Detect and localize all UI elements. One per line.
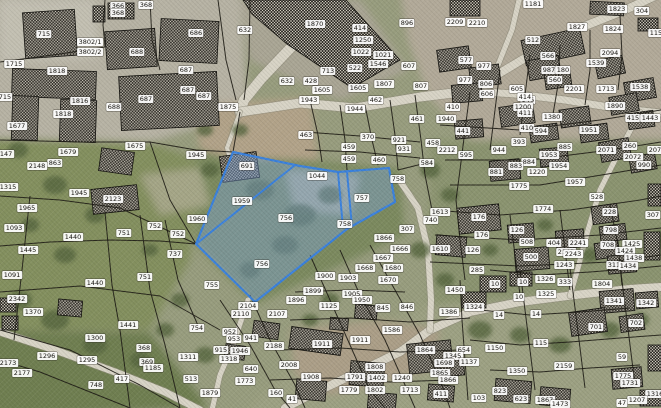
parcel-label: 417: [114, 375, 129, 383]
parcel-label: 1959: [232, 197, 252, 205]
parcel-label: 1370: [23, 308, 43, 316]
parcel-label: 757: [354, 194, 369, 202]
parcel-label: 1022: [351, 48, 371, 56]
parcel-label: 756: [278, 214, 293, 222]
parcel-label: 307: [399, 225, 414, 233]
parcel-label: 881: [488, 168, 503, 176]
parcel-label: 126: [509, 226, 524, 234]
parcel-label: 560: [547, 76, 562, 84]
parcel-label: 605: [509, 85, 524, 93]
parcel-label: 14: [530, 310, 541, 318]
parcel-label: 715: [36, 30, 51, 38]
parcel-label: 368: [138, 1, 153, 9]
parcel-label: 1698: [434, 359, 454, 367]
parcel-label: 1316: [645, 390, 661, 398]
parcel-label: 1152: [648, 29, 661, 37]
parcel-label: 228: [602, 208, 617, 216]
parcel-label: 410: [445, 103, 460, 111]
parcel-label: 990: [636, 161, 651, 169]
parcel-label: 941: [243, 334, 258, 342]
parcel-label: 1866: [438, 376, 458, 384]
parcel-label: 1791: [345, 373, 365, 381]
parcel-label: 1386: [439, 308, 459, 316]
parcel-label: 977: [476, 62, 491, 70]
parcel-label: 404: [546, 239, 561, 247]
parcel-label: 806: [478, 80, 493, 88]
parcel-label: 512: [525, 36, 540, 44]
parcel-label: 751: [116, 229, 131, 237]
parcel-label: 1774: [533, 205, 553, 213]
parcel-label: 1818: [53, 110, 73, 118]
parcel-label: 1667: [373, 254, 393, 262]
parcel-label: 713: [320, 67, 335, 75]
parcel-label: 1450: [445, 286, 465, 294]
parcel-label: 691: [239, 162, 254, 170]
parcel-label: 1342: [636, 299, 656, 307]
parcel-label: 1318: [219, 355, 239, 363]
parcel-label: 584: [419, 159, 434, 167]
parcel-label: 577: [458, 56, 473, 64]
parcel-label: 1181: [523, 0, 543, 8]
parcel-label: 14: [493, 311, 504, 319]
parcel-label: 1325: [536, 290, 556, 298]
parcel-label: 884: [521, 158, 536, 166]
parcel-label: 1957: [565, 178, 585, 186]
parcel-label: 1804: [592, 280, 612, 288]
parcel-label: 508: [519, 238, 534, 246]
parcel-label: 460: [371, 156, 386, 164]
parcel-label: 1775: [509, 182, 529, 190]
parcel-label: 885: [557, 143, 572, 151]
parcel-label: 528: [589, 193, 604, 201]
parcel-label: 463: [298, 131, 313, 139]
parcel-label: 751: [137, 273, 152, 281]
parcel-label: 1380: [542, 113, 562, 121]
parcel-label: 632: [279, 77, 294, 85]
parcel-label: 260: [622, 142, 637, 150]
parcel-label: 1440: [63, 233, 83, 241]
parcel-label: 1091: [2, 271, 22, 279]
parcel-label: 1713: [596, 85, 616, 93]
parcel-labels-layer: 7153663683683802/13802/21715181868668868…: [0, 0, 661, 408]
parcel-label: 126: [465, 246, 480, 254]
parcel-label: 1713: [400, 386, 420, 394]
parcel-label: 846: [399, 303, 414, 311]
parcel-label: 1546: [368, 60, 388, 68]
parcel-label: 687: [180, 86, 195, 94]
parcel-label: 3802/1: [77, 38, 103, 46]
parcel-label: 1899: [303, 287, 323, 295]
parcel-label: 1875: [218, 103, 238, 111]
parcel-label: 522: [347, 64, 362, 72]
parcel-label: 687: [196, 92, 211, 100]
parcel-label: 1125: [319, 302, 339, 310]
parcel-label: 47: [616, 399, 627, 407]
parcel-label: 944: [491, 146, 506, 154]
parcel-label: 1900: [315, 272, 335, 280]
parcel-label: 594: [533, 127, 548, 135]
parcel-label: 1150: [485, 344, 505, 352]
parcel-label: 1311: [178, 353, 198, 361]
parcel-label: 1866: [374, 234, 394, 242]
parcel-label: 180: [555, 66, 570, 74]
parcel-label: 632: [237, 26, 252, 34]
parcel-label: 1093: [4, 224, 24, 232]
parcel-label: 1315: [0, 183, 18, 191]
parcel-label: 304: [634, 7, 649, 15]
parcel-label: 915: [213, 346, 228, 354]
parcel-label: 701: [588, 323, 603, 331]
parcel-label: 368: [136, 344, 151, 352]
parcel-label: 737: [167, 250, 182, 258]
parcel-label: 1911: [350, 336, 370, 344]
parcel-label: 41: [286, 395, 297, 403]
parcel-label: 595: [458, 151, 473, 159]
parcel-label: 740: [423, 216, 438, 224]
parcel-label: 1250: [353, 36, 373, 44]
parcel-label: 752: [170, 230, 185, 238]
parcel-label: 1538: [630, 83, 650, 91]
parcel-label: 931: [396, 145, 411, 153]
parcel-label: 1823: [607, 5, 627, 13]
parcel-label: 1586: [382, 326, 402, 334]
parcel-label: 1773: [235, 377, 255, 385]
parcel-label: 2201: [564, 85, 584, 93]
parcel-label: 883: [508, 162, 523, 170]
parcel-label: 1610: [430, 245, 450, 253]
parcel-label: 1950: [352, 296, 372, 304]
parcel-label: 176: [474, 231, 489, 239]
parcel-label: 687: [138, 95, 153, 103]
parcel-label: 2070: [647, 146, 661, 154]
parcel-label: 2188: [264, 342, 284, 350]
parcel-label: 461: [409, 115, 424, 123]
parcel-label: 1802: [365, 386, 385, 394]
parcel-label: 752: [147, 222, 162, 230]
parcel-label: 176: [471, 213, 486, 221]
parcel-label: 513: [183, 375, 198, 383]
parcel-label: 1679: [58, 148, 78, 156]
parcel-label: 1243: [554, 261, 574, 269]
parcel-label: 1816: [70, 97, 90, 105]
parcel-label: 285: [469, 266, 484, 274]
parcel-label: 688: [106, 103, 121, 111]
parcel-label: 1870: [305, 20, 325, 28]
parcel-label: 1402: [367, 374, 387, 382]
parcel-label: 1807: [374, 80, 394, 88]
parcel-label: 1021: [373, 51, 393, 59]
parcel-label: 1953: [539, 151, 559, 159]
parcel-label: 1240: [392, 374, 412, 382]
parcel-label: 1350: [507, 367, 527, 375]
parcel-label: 1295: [77, 356, 97, 364]
parcel-label: 2094: [600, 49, 620, 57]
parcel-label: 1808: [365, 363, 385, 371]
parcel-label: 1943: [299, 96, 319, 104]
parcel-label: 1296: [37, 352, 57, 360]
parcel-label: 896: [399, 19, 414, 27]
parcel-label: 1945: [69, 189, 89, 197]
parcel-label: 2212: [437, 146, 457, 154]
parcel-label: 1944: [345, 105, 365, 113]
parcel-label: 2110: [231, 310, 251, 318]
parcel-label: 59: [616, 353, 627, 361]
parcel-label: 1731: [620, 379, 640, 387]
parcel-label: 1779: [339, 386, 359, 394]
parcel-label: 500: [523, 253, 538, 261]
parcel-label: 411: [517, 109, 532, 117]
parcel-label: 1896: [286, 296, 306, 304]
parcel-label: 2008: [279, 361, 299, 369]
parcel-label: 748: [88, 381, 103, 389]
parcel-label: 1434: [618, 262, 638, 270]
parcel-label: 333: [557, 278, 572, 286]
parcel-label: 566: [540, 52, 555, 60]
parcel-label: 1945: [186, 151, 206, 159]
parcel-label: 977: [457, 76, 472, 84]
parcel-label: 1438: [624, 254, 644, 262]
parcel-label: 1324: [464, 303, 484, 311]
parcel-label: 1137: [459, 358, 479, 366]
parcel-label: 441: [455, 127, 470, 135]
parcel-label: 823: [492, 387, 507, 395]
parcel-label: 1827: [567, 23, 587, 31]
parcel-label: 160: [268, 389, 283, 397]
parcel-label: 623: [513, 395, 528, 403]
parcel-label: 921: [391, 136, 406, 144]
parcel-label: 2147: [0, 150, 14, 158]
parcel-label: 2342: [7, 295, 27, 303]
parcel-label: 2243: [563, 250, 583, 258]
parcel-label: 863: [47, 159, 62, 167]
parcel-label: 103: [471, 394, 486, 402]
parcel-label: 2210: [467, 19, 487, 27]
parcel-label: 845: [375, 304, 390, 312]
parcel-label: 2071: [596, 146, 616, 154]
parcel-label: 1960: [187, 215, 207, 223]
parcel-label: 10: [513, 293, 524, 301]
parcel-label: 428: [303, 77, 318, 85]
parcel-label: 1715: [4, 60, 24, 68]
parcel-label: 1613: [430, 208, 450, 216]
parcel-label: 307: [645, 211, 660, 219]
parcel-label: 1946: [230, 347, 250, 355]
parcel-label: 1890: [605, 102, 625, 110]
parcel-label: 2107: [267, 310, 287, 318]
parcel-label: 1341: [604, 297, 624, 305]
parcel-label: 2159: [554, 362, 574, 370]
parcel-label: 370: [360, 133, 375, 141]
parcel-label: 1668: [355, 264, 375, 272]
parcel-label: 2104: [238, 302, 258, 310]
parcel-label: 1818: [47, 67, 67, 75]
parcel-label: 1207: [627, 396, 647, 404]
parcel-label: 688: [129, 48, 144, 56]
parcel-label: 1677: [7, 122, 27, 130]
parcel-label: 462: [368, 96, 383, 104]
parcel-label: 1440: [85, 279, 105, 287]
parcel-label: 10: [517, 278, 528, 286]
parcel-label: 1675: [125, 142, 145, 150]
parcel-label: 1908: [301, 373, 321, 381]
parcel-label: 1911: [312, 340, 332, 348]
parcel-label: 2148: [27, 162, 47, 170]
parcel-label: 459: [341, 143, 356, 151]
parcel-label: 756: [254, 260, 269, 268]
parcel-label: 754: [189, 324, 204, 332]
parcel-label: 640: [243, 365, 258, 373]
parcel-label: 1666: [390, 245, 410, 253]
parcel-label: 1326: [535, 275, 555, 283]
parcel-label: 607: [401, 62, 416, 70]
parcel-label: 758: [390, 175, 405, 183]
parcel-label: 2123: [103, 195, 123, 203]
parcel-label: 1445: [18, 246, 38, 254]
parcel-label: 1605: [348, 84, 368, 92]
parcel-label: 1220: [527, 168, 547, 176]
parcel-label: 414: [352, 24, 367, 32]
parcel-label: 798: [603, 226, 618, 234]
parcel-label: 2173: [0, 359, 18, 367]
parcel-label: 755: [204, 281, 219, 289]
parcel-label: 1864: [415, 346, 435, 354]
parcel-label: 2209: [445, 18, 465, 26]
parcel-label: 715: [0, 93, 13, 101]
parcel-label: 415: [625, 114, 640, 122]
parcel-label: 1539: [586, 59, 606, 67]
parcel-label: 606: [479, 90, 494, 98]
parcel-label: 414: [517, 93, 532, 101]
parcel-label: 459: [341, 155, 356, 163]
parcel-label: 393: [511, 138, 526, 146]
parcel-label: 1044: [307, 172, 327, 180]
parcel-label: 1903: [338, 274, 358, 282]
parcel-label: 1965: [17, 204, 37, 212]
parcel-label: 687: [178, 66, 193, 74]
parcel-label: 1670: [378, 276, 398, 284]
parcel-label: 953: [226, 335, 241, 343]
parcel-label: 1300: [85, 334, 105, 342]
parcel-label: 807: [413, 82, 428, 90]
parcel-label: 2241: [568, 239, 588, 247]
map-viewport[interactable]: 7153663683683802/13802/21715181868668868…: [0, 0, 661, 408]
parcel-label: 2072: [623, 153, 643, 161]
parcel-label: 1680: [383, 264, 403, 272]
parcel-label: 1954: [549, 162, 569, 170]
parcel-label: 1441: [118, 321, 138, 329]
parcel-label: 1185: [143, 364, 163, 372]
parcel-label: 1879: [200, 389, 220, 397]
parcel-label: 1473: [550, 400, 570, 408]
parcel-label: 411: [433, 390, 448, 398]
parcel-label: 1605: [312, 86, 332, 94]
parcel-label: 686: [188, 29, 203, 37]
parcel-label: 368: [110, 9, 125, 17]
parcel-label: 1824: [603, 25, 623, 33]
parcel-label: 1951: [579, 126, 599, 134]
parcel-label: 1443: [640, 114, 660, 122]
parcel-label: 708: [600, 241, 615, 249]
parcel-label: 10: [489, 280, 500, 288]
parcel-label: 702: [628, 319, 643, 327]
parcel-label: 1940: [436, 115, 456, 123]
parcel-label: 115: [533, 339, 548, 347]
parcel-label: 3802/2: [77, 48, 103, 56]
parcel-label: 758: [337, 220, 352, 228]
parcel-label: 2177: [12, 369, 32, 377]
